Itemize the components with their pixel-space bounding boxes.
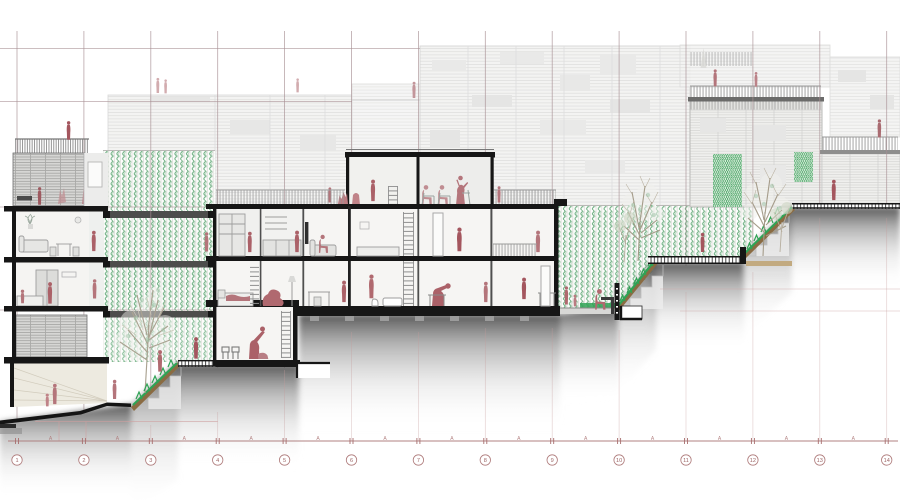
svg-text:12: 12 <box>750 458 756 464</box>
svg-text:7: 7 <box>417 458 420 464</box>
svg-text:5: 5 <box>283 458 286 464</box>
svg-text:9: 9 <box>551 458 554 464</box>
svg-text:6: 6 <box>350 458 353 464</box>
svg-text:14: 14 <box>884 458 890 464</box>
svg-text:11: 11 <box>683 458 689 464</box>
svg-text:4: 4 <box>216 458 219 464</box>
svg-text:8: 8 <box>484 458 487 464</box>
svg-text:1: 1 <box>15 458 18 464</box>
svg-text:2: 2 <box>82 458 85 464</box>
svg-text:3: 3 <box>149 458 152 464</box>
svg-text:10: 10 <box>616 458 622 464</box>
svg-text:13: 13 <box>817 458 823 464</box>
